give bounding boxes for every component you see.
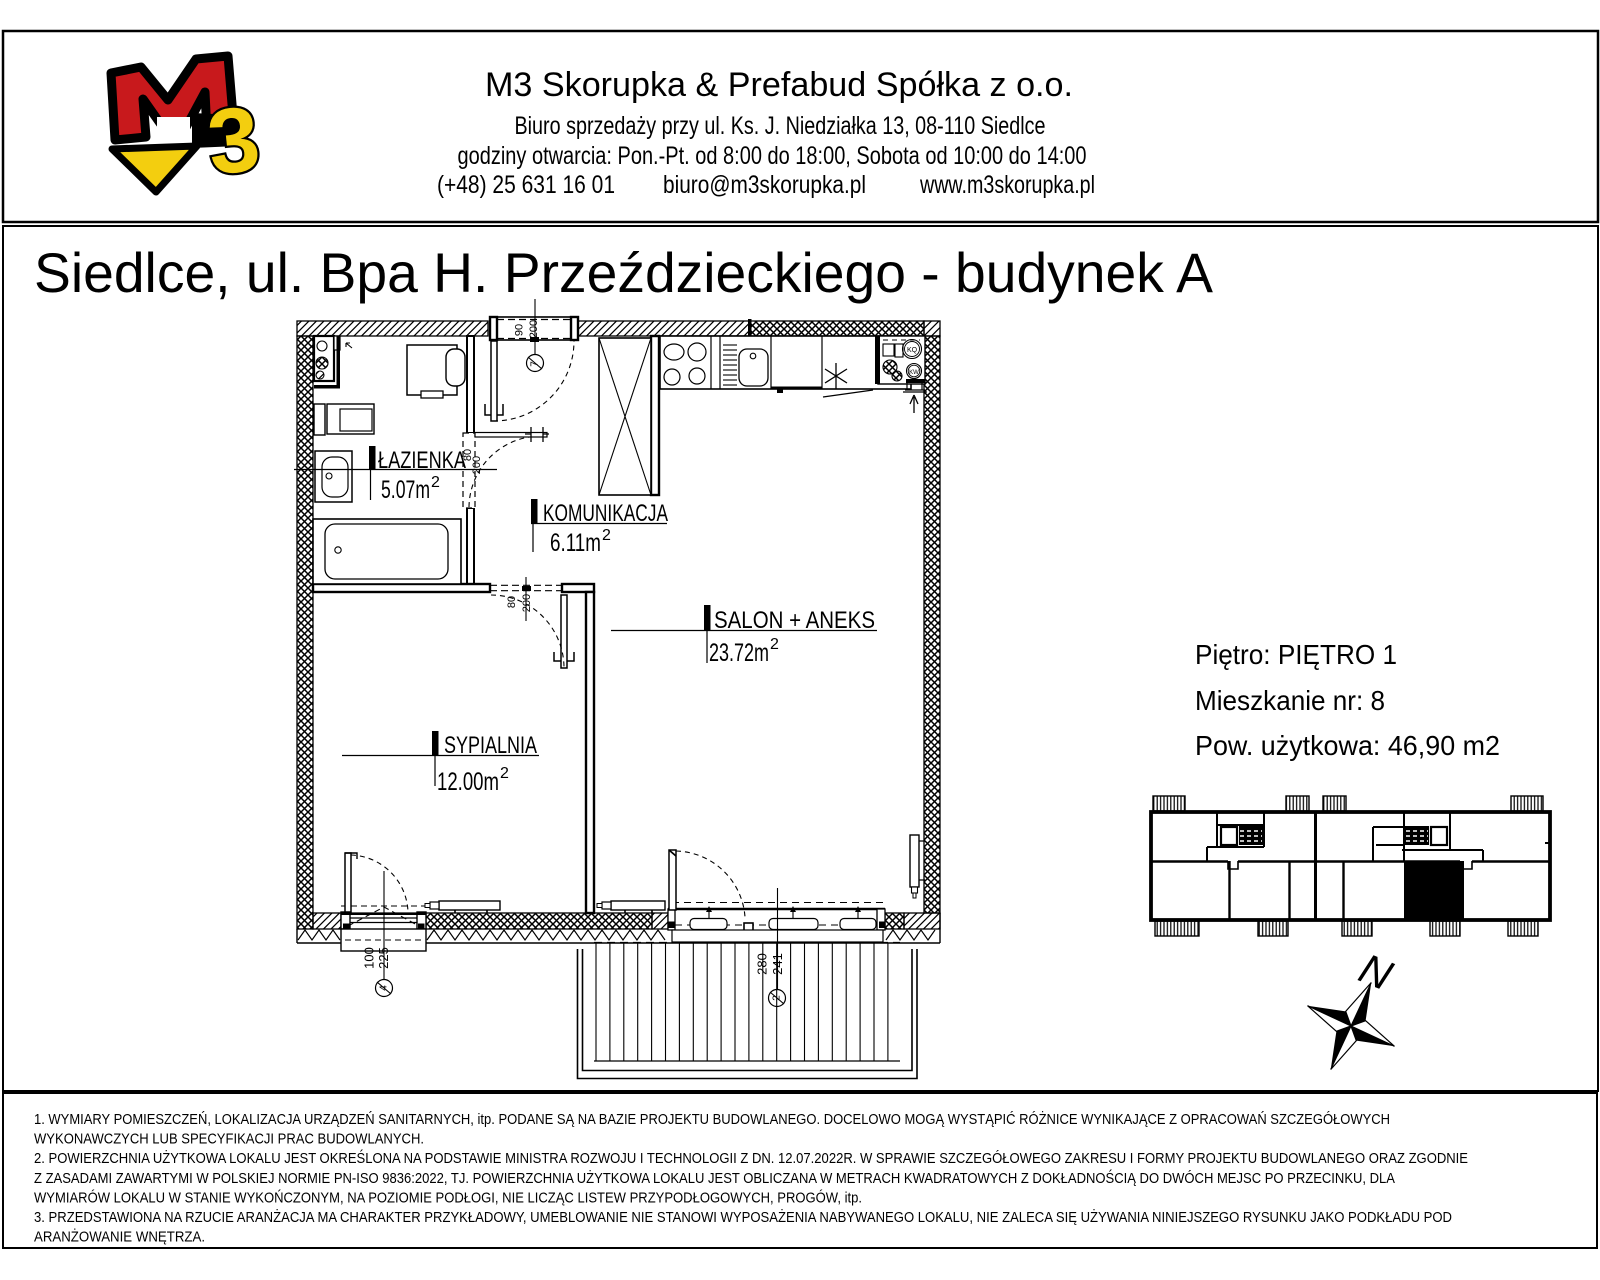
- svg-text:3. PRZEDSTAWIONA NA RZUCIE ARA: 3. PRZEDSTAWIONA NA RZUCIE ARANŻACJA MA …: [34, 1208, 1452, 1226]
- svg-text:225: 225: [376, 947, 391, 969]
- svg-text:Z ZASADAMI ZAWARTYMI W POLSKIE: Z ZASADAMI ZAWARTYMI W POLSKIEJ NORMIE P…: [34, 1169, 1395, 1187]
- svg-text:5.07m: 5.07m: [381, 476, 430, 504]
- svg-text:241: 241: [770, 953, 785, 975]
- svg-text:2: 2: [770, 636, 779, 653]
- svg-text:100: 100: [361, 947, 376, 969]
- svg-text:1. WYMIARY POMIESZCZEŃ, LOKALI: 1. WYMIARY POMIESZCZEŃ, LOKALIZACJA URZĄ…: [34, 1110, 1390, 1128]
- svg-text:biuro@m3skorupka.pl: biuro@m3skorupka.pl: [663, 171, 866, 199]
- svg-text:www.m3skorupka.pl: www.m3skorupka.pl: [919, 171, 1095, 199]
- svg-text:6.11m: 6.11m: [550, 529, 601, 557]
- svg-text:2: 2: [431, 474, 440, 491]
- svg-text:3: 3: [203, 88, 265, 195]
- svg-text:2: 2: [602, 527, 611, 544]
- svg-text:Piętro: PIĘTRO 1: Piętro: PIĘTRO 1: [1195, 639, 1397, 670]
- svg-text:Mieszkanie nr: 8: Mieszkanie nr: 8: [1195, 685, 1385, 716]
- svg-text:Siedlce, ul. Bpa H. Przeździec: Siedlce, ul. Bpa H. Przeździeckiego - bu…: [34, 241, 1214, 304]
- svg-text:WYKONAWCZYCH LUB SPECYFIKACJI: WYKONAWCZYCH LUB SPECYFIKACJI PRAC BUDOW…: [34, 1131, 424, 1148]
- svg-text:80: 80: [506, 596, 518, 608]
- svg-text:M3 Skorupka & Prefabud Spółka: M3 Skorupka & Prefabud Spółka z o.o.: [485, 66, 1073, 104]
- svg-text:Biuro sprzedaży przy ul. Ks. J: Biuro sprzedaży przy ul. Ks. J. Niedział…: [515, 112, 1046, 140]
- svg-text:KQ: KQ: [907, 347, 918, 354]
- svg-text:Pow. użytkowa: 46,90 m2: Pow. użytkowa: 46,90 m2: [1195, 730, 1500, 761]
- svg-text:(+48) 25 631 16 01: (+48) 25 631 16 01: [437, 171, 615, 199]
- svg-text:200: 200: [528, 320, 540, 338]
- svg-text:WYMIARÓW LOKALU W STANIE WYKOŃ: WYMIARÓW LOKALU W STANIE WYKOŃCZONYM, NA…: [34, 1189, 862, 1206]
- svg-text:7: 7: [530, 361, 541, 367]
- svg-text:12.00m: 12.00m: [437, 768, 499, 796]
- svg-text:KW: KW: [909, 370, 919, 376]
- svg-text:4: 4: [379, 985, 390, 991]
- svg-text:90: 90: [513, 324, 525, 336]
- svg-text:godziny otwarcia: Pon.-Pt. od: godziny otwarcia: Pon.-Pt. od 8:00 do 18…: [458, 142, 1087, 170]
- svg-text:280: 280: [754, 953, 769, 975]
- svg-text:200: 200: [471, 456, 483, 474]
- svg-text:200: 200: [521, 594, 533, 612]
- svg-text:23.72m: 23.72m: [709, 639, 769, 667]
- svg-text:2. POWIERZCHNIA UŻYTKOWA LOKAL: 2. POWIERZCHNIA UŻYTKOWA LOKALU JEST OKR…: [34, 1149, 1468, 1167]
- svg-text:ARANŻOWANIE WNĘTRZA.: ARANŻOWANIE WNĘTRZA.: [34, 1228, 205, 1246]
- svg-text:2: 2: [500, 765, 509, 782]
